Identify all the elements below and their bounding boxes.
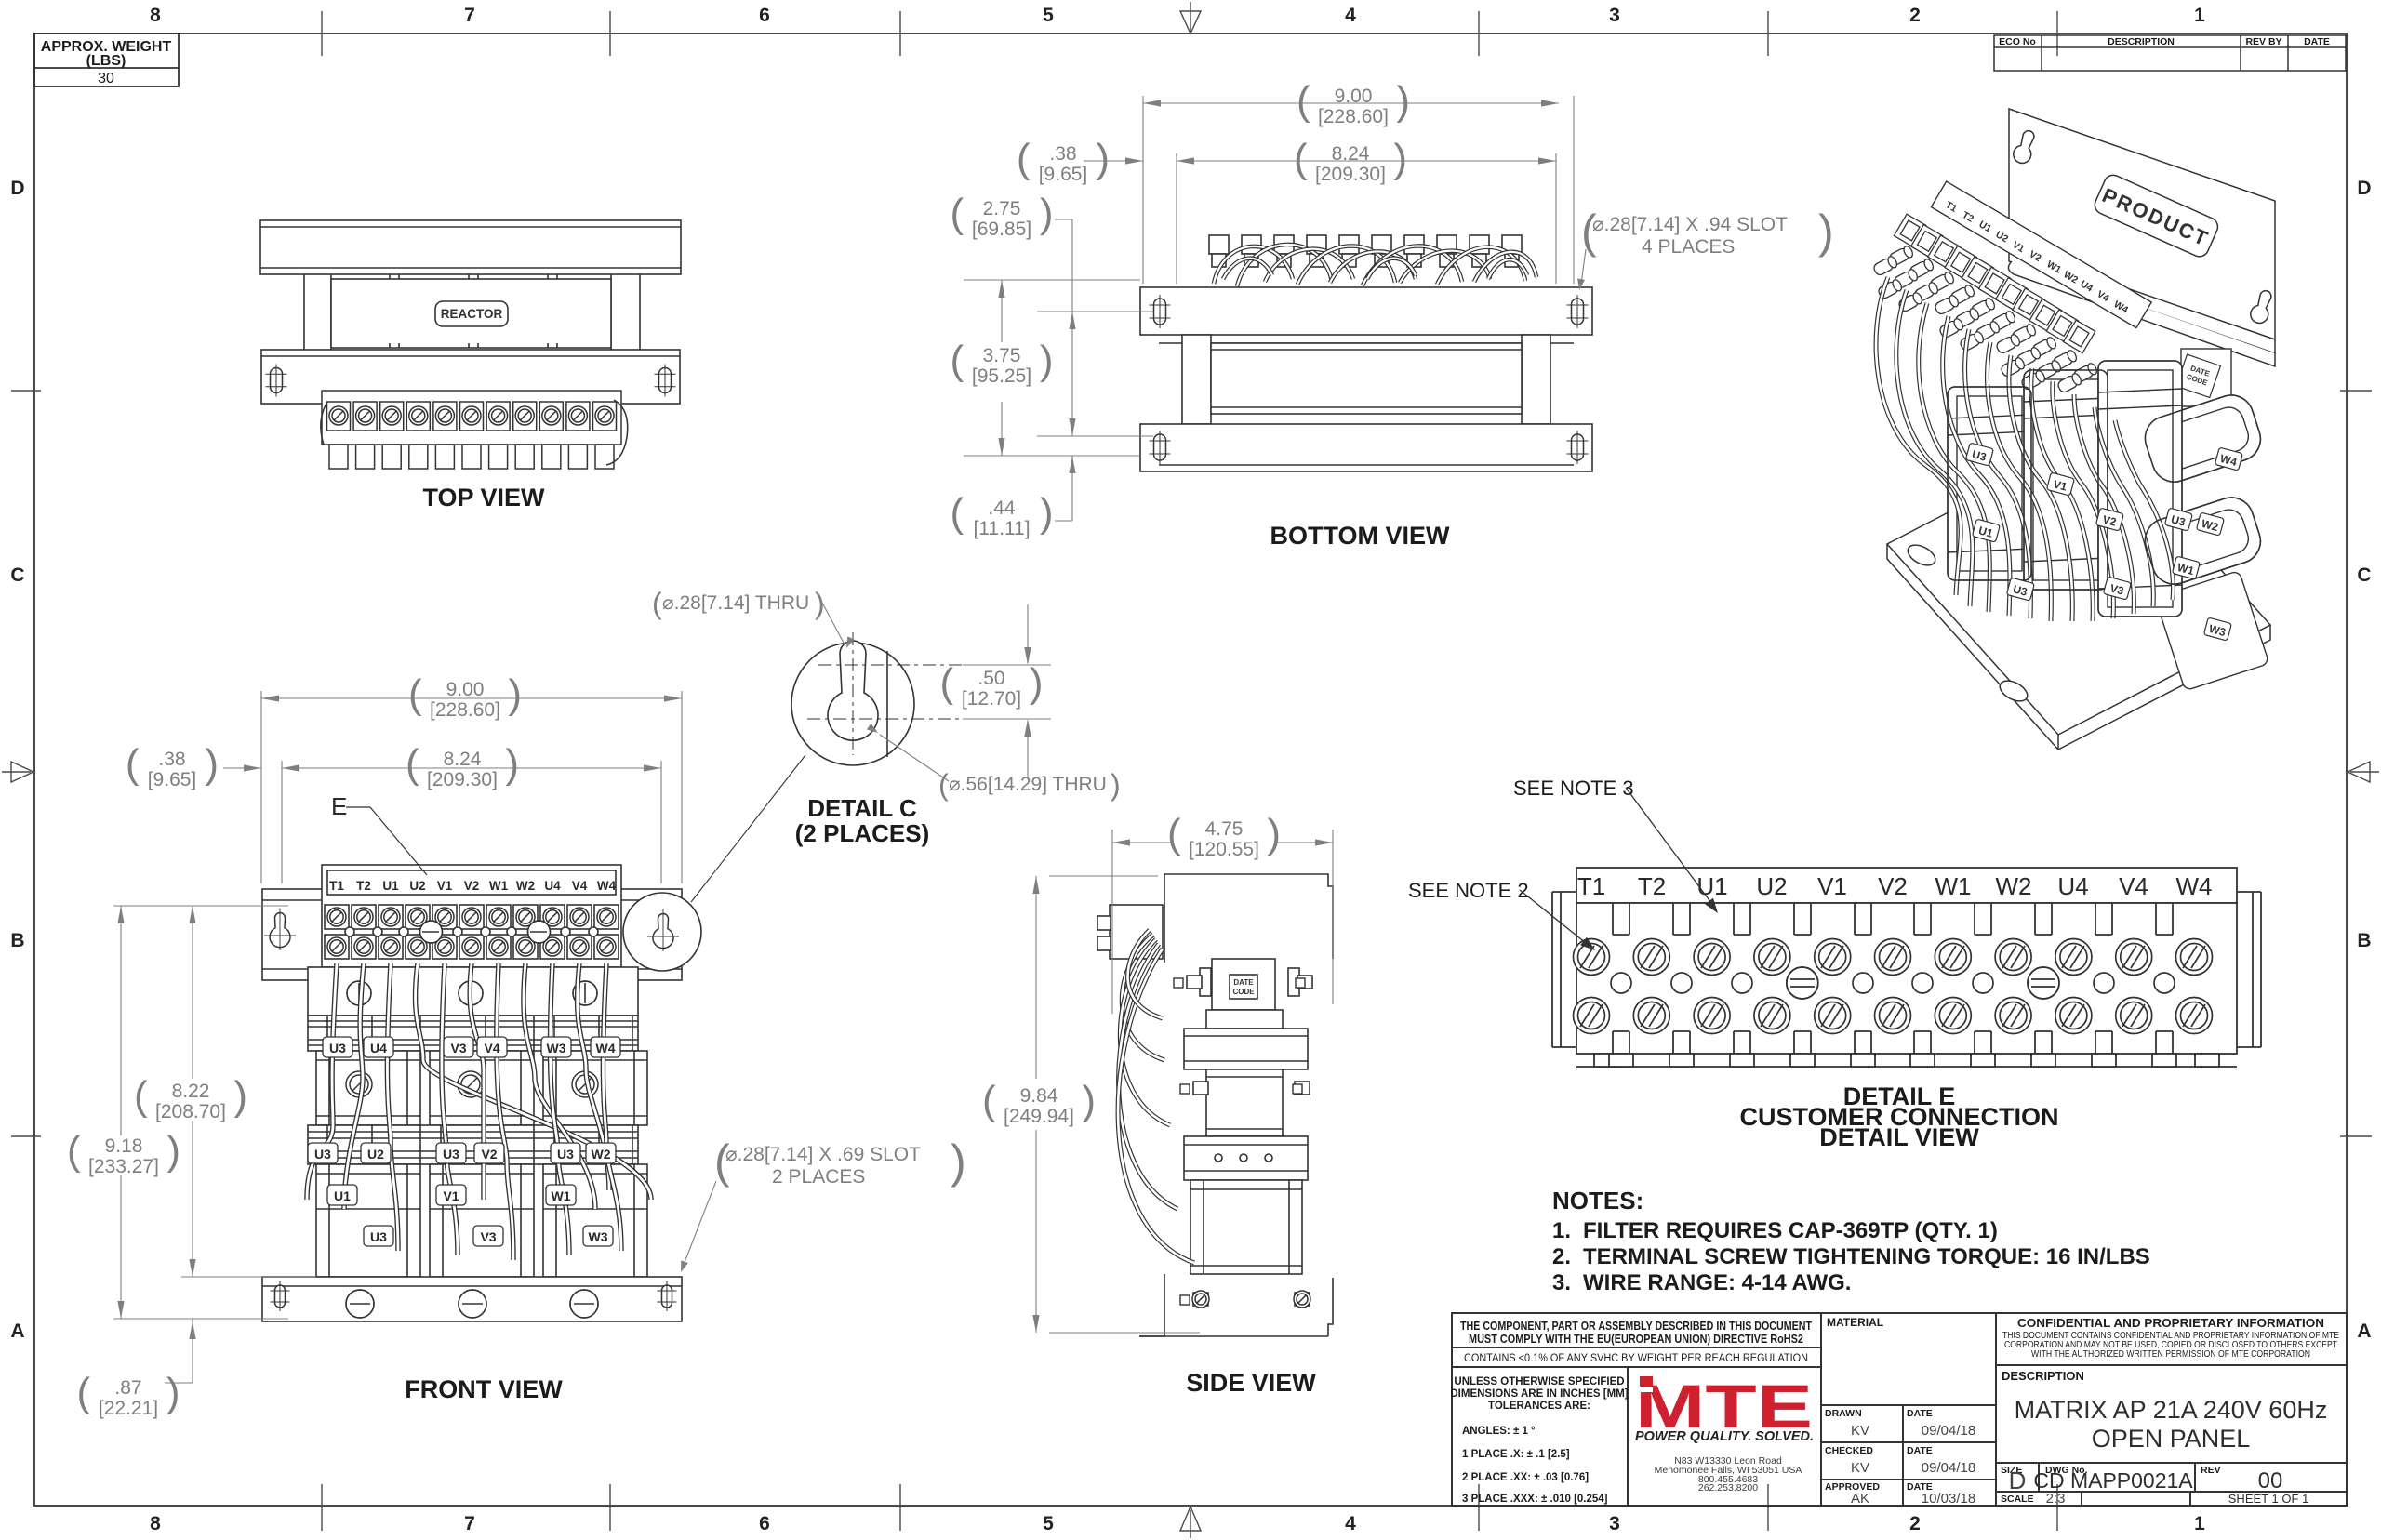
svg-text:3.: 3.: [1552, 1270, 1571, 1295]
svg-text:(: (: [134, 1073, 148, 1119]
svg-text:SHEET 1 OF 1: SHEET 1 OF 1: [2228, 1492, 2308, 1506]
svg-text:DATE: DATE: [1907, 1408, 1933, 1419]
svg-text:(: (: [67, 1128, 81, 1174]
svg-text:C: C: [2357, 564, 2371, 586]
svg-text:[69.85]: [69.85]: [972, 219, 1031, 240]
svg-text:(: (: [982, 1078, 996, 1123]
svg-text:⌀.28[7.14] X .69 SLOT: ⌀.28[7.14] X .69 SLOT: [725, 1144, 921, 1165]
svg-text:[209.30]: [209.30]: [1315, 164, 1386, 185]
svg-text:[249.94]: [249.94]: [1004, 1106, 1074, 1127]
svg-text:9.00: 9.00: [446, 679, 485, 700]
svg-text:FILTER REQUIRES CAP-369TP (QTY: FILTER REQUIRES CAP-369TP (QTY. 1): [1583, 1218, 1998, 1243]
svg-text:V2: V2: [481, 1147, 497, 1162]
svg-text:A: A: [2357, 1321, 2371, 1342]
svg-text:(: (: [1297, 78, 1310, 124]
svg-text:U1: U1: [1696, 872, 1727, 900]
svg-text:SIDE VIEW: SIDE VIEW: [1186, 1369, 1316, 1397]
svg-text:W4: W4: [597, 879, 617, 893]
svg-text:): ): [951, 1135, 966, 1188]
svg-text:V2: V2: [464, 879, 480, 893]
svg-text:REACTOR: REACTOR: [441, 307, 503, 321]
svg-text:V4: V4: [484, 1041, 499, 1055]
svg-text:3 PLACE .XXX: ± .010 [0.254]: 3 PLACE .XXX: ± .010 [0.254]: [1462, 1494, 1608, 1505]
svg-text:262.253.8200: 262.253.8200: [1698, 1482, 1758, 1494]
svg-text:AK: AK: [1851, 1491, 1869, 1507]
svg-text:(: (: [939, 660, 953, 706]
svg-text:REV: REV: [2201, 1465, 2221, 1476]
svg-text:SEE NOTE 3: SEE NOTE 3: [1513, 777, 1634, 800]
svg-text:MUST COMPLY WITH THE EU(EUROPE: MUST COMPLY WITH THE EU(EUROPEAN UNION) …: [1469, 1333, 1803, 1346]
svg-text:TOLERANCES ARE:: TOLERANCES ARE:: [1488, 1401, 1590, 1412]
svg-text:[12.70]: [12.70]: [962, 688, 1021, 710]
svg-text:W3: W3: [589, 1229, 608, 1244]
svg-text:C: C: [10, 564, 24, 586]
svg-text:[228.60]: [228.60]: [1318, 106, 1389, 127]
svg-text:OPEN PANEL: OPEN PANEL: [2092, 1425, 2251, 1453]
svg-text:[22.21]: [22.21]: [99, 1398, 158, 1419]
svg-text:[95.25]: [95.25]: [972, 365, 1031, 387]
svg-text:2.75: 2.75: [983, 198, 1021, 219]
svg-text:7: 7: [464, 5, 475, 26]
svg-text:DRAWN: DRAWN: [1825, 1408, 1862, 1419]
svg-text:): ): [508, 671, 522, 717]
svg-text:8.24: 8.24: [444, 749, 482, 770]
svg-text:10/03/18: 10/03/18: [1922, 1491, 1975, 1507]
svg-text:): ): [505, 741, 519, 787]
svg-text:3: 3: [1609, 1513, 1620, 1534]
svg-text:E: E: [331, 792, 347, 820]
svg-text:TOP VIEW: TOP VIEW: [422, 484, 545, 511]
svg-text:9.00: 9.00: [1335, 86, 1373, 107]
svg-text:6: 6: [759, 1513, 770, 1534]
svg-text:W1: W1: [552, 1188, 571, 1203]
svg-text:W1: W1: [1935, 872, 1972, 900]
svg-text:⌀.28[7.14] THRU: ⌀.28[7.14] THRU: [662, 592, 809, 614]
svg-text:ECO No: ECO No: [1999, 36, 2036, 47]
svg-text:V3: V3: [480, 1229, 496, 1244]
svg-text:W4: W4: [596, 1041, 616, 1055]
svg-text:(: (: [408, 671, 422, 717]
svg-text:8.24: 8.24: [1332, 143, 1370, 165]
svg-text:6: 6: [759, 5, 770, 26]
svg-text:(: (: [950, 338, 964, 383]
svg-text:W1: W1: [489, 879, 509, 893]
svg-text:2: 2: [1909, 5, 1921, 26]
svg-text:2:3: 2:3: [2046, 1491, 2066, 1507]
svg-text:(: (: [1581, 206, 1597, 258]
svg-text:8: 8: [150, 1513, 161, 1534]
svg-text:B: B: [2357, 930, 2371, 951]
svg-text:T2: T2: [1638, 872, 1666, 900]
svg-text:V1: V1: [437, 879, 453, 893]
svg-text:U4: U4: [370, 1041, 387, 1055]
svg-text:T1: T1: [329, 879, 344, 893]
svg-text:U2: U2: [409, 879, 425, 893]
svg-text:3.75: 3.75: [983, 345, 1021, 366]
svg-text:): ): [205, 741, 219, 787]
svg-text:09/04/18: 09/04/18: [1922, 1423, 1975, 1439]
svg-text:): ): [1096, 136, 1110, 181]
svg-text:D: D: [2009, 1467, 2027, 1494]
svg-text:U1: U1: [334, 1188, 351, 1203]
svg-text:7: 7: [464, 1513, 475, 1534]
svg-text:4 PLACES: 4 PLACES: [1642, 236, 1735, 258]
svg-text:(: (: [950, 191, 964, 236]
svg-text:[233.27]: [233.27]: [88, 1156, 159, 1177]
svg-text:2: 2: [1909, 1513, 1921, 1534]
svg-text:V4: V4: [2119, 872, 2148, 900]
svg-text:): ): [1818, 206, 1834, 258]
svg-text:): ): [1082, 1078, 1096, 1123]
svg-text:): ): [1040, 490, 1054, 536]
svg-text:B: B: [10, 930, 24, 951]
svg-text:): ): [233, 1073, 247, 1119]
svg-text:POWER QUALITY. SOLVED.: POWER QUALITY. SOLVED.: [1635, 1429, 1814, 1444]
svg-text:REV BY: REV BY: [2245, 36, 2281, 47]
svg-text:CHECKED: CHECKED: [1825, 1445, 1873, 1456]
svg-text:8: 8: [150, 5, 161, 26]
svg-text:[120.55]: [120.55]: [1189, 839, 1259, 860]
svg-text:SCALE: SCALE: [2001, 1494, 2034, 1505]
svg-text:T2: T2: [356, 879, 371, 893]
svg-text:CODE: CODE: [1232, 988, 1255, 996]
svg-text:WIRE RANGE: 4-14 AWG.: WIRE RANGE: 4-14 AWG.: [1583, 1270, 1851, 1295]
svg-text:): ): [1030, 660, 1044, 706]
svg-text:BOTTOM VIEW: BOTTOM VIEW: [1270, 522, 1451, 550]
svg-text:KV: KV: [1851, 1460, 1869, 1476]
svg-text:CONTAINS <0.1% OF ANY SVHC BY: CONTAINS <0.1% OF ANY SVHC BY WEIGHT PER…: [1464, 1353, 1808, 1364]
svg-text:.44: .44: [988, 498, 1016, 519]
svg-text:1: 1: [2194, 5, 2205, 26]
svg-text:(: (: [1294, 136, 1308, 181]
svg-text:MATERIAL: MATERIAL: [1827, 1316, 1883, 1329]
svg-text:9.18: 9.18: [105, 1135, 143, 1157]
svg-text:T1: T1: [1577, 872, 1605, 900]
svg-text:9.84: 9.84: [1020, 1085, 1058, 1107]
svg-text:DATE: DATE: [1907, 1445, 1933, 1456]
svg-text:.87: .87: [114, 1377, 141, 1399]
svg-text:MATRIX AP 21A 240V 60Hz: MATRIX AP 21A 240V 60Hz: [2015, 1396, 2328, 1424]
svg-text:SEE NOTE 2: SEE NOTE 2: [1408, 879, 1529, 902]
svg-text:V1: V1: [1817, 872, 1847, 900]
svg-text:W2: W2: [1996, 872, 2032, 900]
svg-text:1: 1: [2194, 1513, 2205, 1534]
svg-text:DATE: DATE: [1233, 978, 1254, 987]
svg-text:(: (: [938, 768, 949, 802]
svg-text:(: (: [652, 587, 662, 620]
svg-text:D: D: [10, 178, 24, 199]
svg-text:[228.60]: [228.60]: [430, 699, 500, 721]
svg-text:DATE: DATE: [2304, 36, 2330, 47]
svg-text:): ): [1040, 191, 1054, 236]
svg-text:U3: U3: [443, 1147, 459, 1162]
svg-text:V1: V1: [443, 1188, 459, 1203]
svg-text:[9.65]: [9.65]: [148, 769, 197, 790]
svg-text:THE COMPONENT, PART OR ASSEMBL: THE COMPONENT, PART OR ASSEMBLY DESCRIBE…: [1460, 1320, 1812, 1333]
svg-text:5: 5: [1043, 1513, 1054, 1534]
svg-text:U4: U4: [544, 879, 561, 893]
svg-text:U4: U4: [2057, 872, 2088, 900]
svg-text:2.: 2.: [1552, 1244, 1571, 1269]
svg-text:8.22: 8.22: [172, 1081, 210, 1102]
svg-text:W2: W2: [516, 879, 535, 893]
svg-text:30: 30: [98, 71, 114, 86]
svg-text:DETAIL VIEW: DETAIL VIEW: [1819, 1123, 1979, 1151]
svg-text:CD MAPP0021A: CD MAPP0021A: [2033, 1468, 2193, 1493]
svg-text:TERMINAL SCREW TIGHTENING TORQ: TERMINAL SCREW TIGHTENING TORQUE: 16 IN/…: [1583, 1244, 2150, 1269]
svg-text:3: 3: [1609, 5, 1620, 26]
svg-text:DIMENSIONS ARE IN INCHES [MM]: DIMENSIONS ARE IN INCHES [MM]: [1450, 1388, 1628, 1400]
svg-text:[209.30]: [209.30]: [427, 769, 498, 790]
svg-text:4.75: 4.75: [1205, 818, 1244, 840]
svg-text:): ): [166, 1370, 180, 1415]
svg-text:(LBS): (LBS): [86, 53, 126, 69]
svg-text:U3: U3: [370, 1229, 387, 1244]
svg-text:(: (: [406, 741, 419, 787]
svg-text:U3: U3: [314, 1147, 331, 1162]
svg-text:U3: U3: [557, 1147, 574, 1162]
svg-text:U2: U2: [367, 1147, 384, 1162]
svg-text:FRONT VIEW: FRONT VIEW: [405, 1375, 563, 1403]
svg-text:NOTES:: NOTES:: [1552, 1187, 1643, 1215]
svg-text:[11.11]: [11.11]: [973, 518, 1030, 539]
svg-text:V3: V3: [450, 1041, 466, 1055]
svg-text:(2 PLACES): (2 PLACES): [795, 819, 929, 847]
svg-text:1.: 1.: [1552, 1218, 1571, 1243]
svg-text:WITH THE AUTHORIZED WRITTEN PE: WITH THE AUTHORIZED WRITTEN PERMISSION O…: [2031, 1349, 2310, 1360]
svg-text:DESCRIPTION: DESCRIPTION: [2002, 1369, 2084, 1383]
svg-text:W2: W2: [592, 1147, 611, 1162]
svg-text:U1: U1: [382, 879, 399, 893]
svg-text:): ): [1040, 338, 1054, 383]
svg-text:): ): [1111, 768, 1121, 802]
svg-text:U3: U3: [329, 1041, 346, 1055]
svg-text:[208.70]: [208.70]: [155, 1101, 226, 1122]
svg-text:(: (: [76, 1370, 90, 1415]
svg-text:⌀.28[7.14] X .94 SLOT: ⌀.28[7.14] X .94 SLOT: [1592, 214, 1788, 235]
svg-text:W3: W3: [547, 1041, 566, 1055]
svg-text:2 PLACE .XX: ± .03 [0.76]: 2 PLACE .XX: ± .03 [0.76]: [1462, 1472, 1589, 1483]
svg-text:(: (: [1167, 811, 1181, 856]
svg-text:U2: U2: [1756, 872, 1787, 900]
svg-text:D: D: [2357, 178, 2371, 199]
svg-text:W4: W4: [2176, 872, 2213, 900]
svg-text:4: 4: [1345, 5, 1356, 26]
svg-text:5: 5: [1043, 5, 1054, 26]
svg-text:ANGLES: ± 1 °: ANGLES: ± 1 °: [1462, 1426, 1536, 1437]
svg-text:09/04/18: 09/04/18: [1922, 1460, 1975, 1476]
svg-text:DESCRIPTION: DESCRIPTION: [2108, 36, 2175, 47]
svg-text:V4: V4: [572, 879, 588, 893]
svg-text:DETAIL C: DETAIL C: [807, 794, 917, 822]
svg-text:00: 00: [2258, 1468, 2283, 1494]
svg-text:): ): [1393, 136, 1407, 181]
svg-text:): ): [1396, 78, 1410, 124]
svg-text:A: A: [10, 1321, 24, 1342]
svg-text:V2: V2: [1878, 872, 1908, 900]
svg-text:(: (: [126, 741, 140, 787]
svg-text:): ): [166, 1128, 180, 1174]
svg-text:): ): [1267, 811, 1281, 856]
svg-text:[9.65]: [9.65]: [1039, 164, 1088, 185]
svg-text:2 PLACES: 2 PLACES: [772, 1166, 865, 1188]
svg-text:.50: .50: [978, 668, 1004, 689]
svg-text:KV: KV: [1851, 1423, 1869, 1439]
svg-text:4: 4: [1345, 1513, 1356, 1534]
svg-text:.38: .38: [158, 749, 185, 770]
svg-text:(: (: [950, 490, 964, 536]
svg-text:CONFIDENTIAL AND PROPRIETARY I: CONFIDENTIAL AND PROPRIETARY INFORMATION: [2017, 1316, 2324, 1330]
svg-text:(: (: [714, 1135, 730, 1188]
svg-text:UNLESS OTHERWISE SPECIFIED: UNLESS OTHERWISE SPECIFIED: [1454, 1376, 1624, 1387]
svg-text:1 PLACE .X: ± .1 [2.5]: 1 PLACE .X: ± .1 [2.5]: [1462, 1449, 1570, 1460]
svg-text:(: (: [1017, 136, 1031, 181]
svg-text:.38: .38: [1049, 143, 1076, 165]
